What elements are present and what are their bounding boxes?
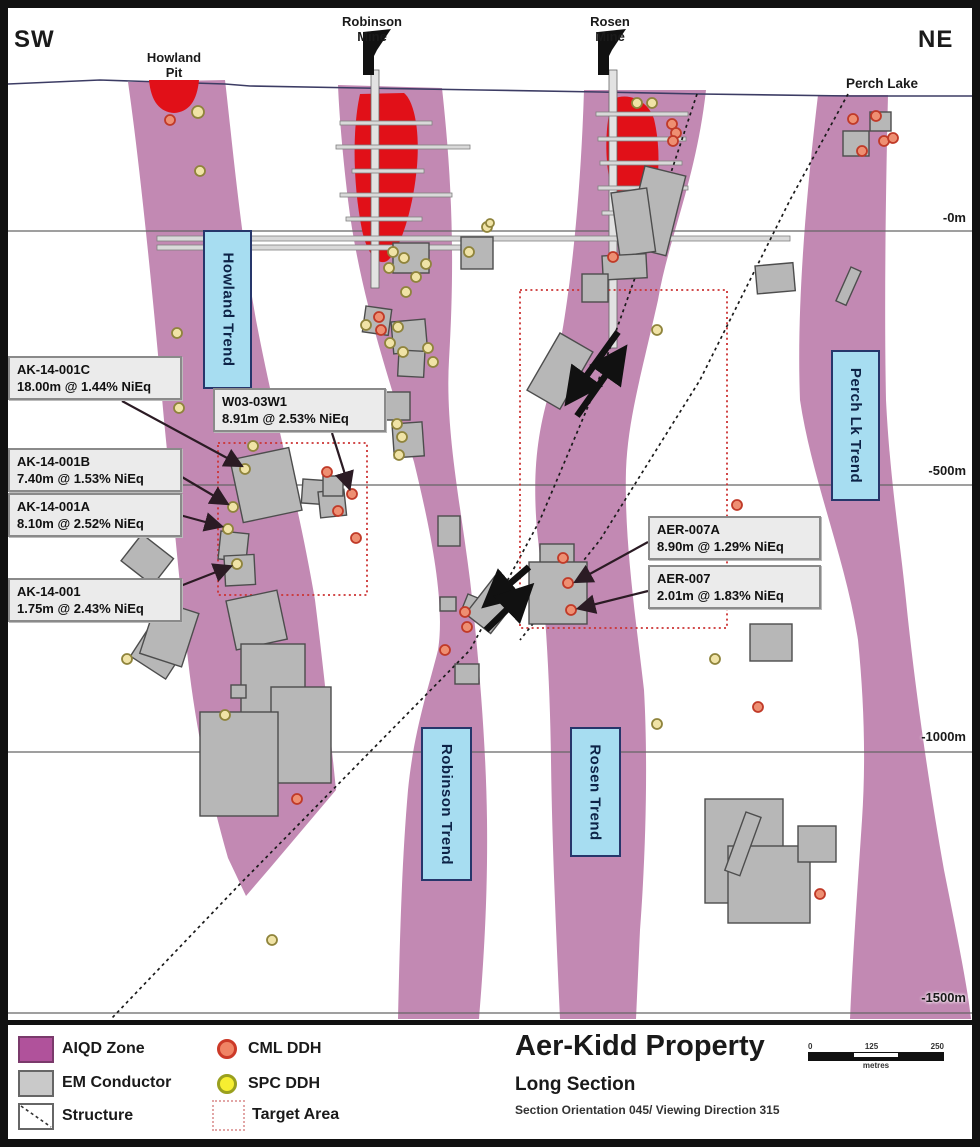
- howland-trend-label: Howland Trend: [203, 230, 252, 389]
- depth-marker-1000m: -1000m: [900, 729, 966, 744]
- spc-ddh-swatch: [217, 1074, 237, 1094]
- scale-bar-ticks: 0 125 250: [808, 1042, 944, 1051]
- em-conductor-swatch: [18, 1070, 54, 1097]
- structure-legend-label: Structure: [62, 1107, 133, 1125]
- section-drawing: [0, 0, 980, 1147]
- howland-pit-label: Howland Pit: [132, 50, 216, 80]
- spc-ddh-legend-label: SPC DDH: [248, 1075, 320, 1093]
- cml-ddh-swatch: [217, 1039, 237, 1059]
- depth-marker-0m: -0m: [900, 210, 966, 225]
- structure-swatch: [18, 1103, 54, 1130]
- scale-bar: 0 125 250 metres: [808, 1042, 944, 1070]
- corner-label-sw: SW: [14, 26, 55, 54]
- corner-label-ne: NE: [918, 26, 953, 54]
- target-area-swatch: [212, 1100, 245, 1131]
- structure-swatch-line: [20, 1105, 52, 1128]
- scale-bar-graphic: [808, 1052, 944, 1061]
- robinson-trend-label: Robinson Trend: [421, 727, 472, 881]
- annotation-ak-14-001a: AK-14-001A 8.10m @ 2.52% NiEq: [8, 493, 182, 537]
- annotation-w03-03w1: W03-03W1 8.91m @ 2.53% NiEq: [213, 388, 386, 432]
- cml-ddh-legend-label: CML DDH: [248, 1040, 321, 1058]
- figure-orientation-note: Section Orientation 045/ Viewing Directi…: [515, 1103, 780, 1117]
- perch-lake-label: Perch Lake: [846, 76, 918, 91]
- figure-subtitle: Long Section: [515, 1074, 635, 1096]
- annotation-ak-14-001: AK-14-001 1.75m @ 2.43% NiEq: [8, 578, 182, 622]
- annotation-aer-007a: AER-007A 8.90m @ 1.29% NiEq: [648, 516, 821, 560]
- depth-marker-500m: -500m: [900, 463, 966, 478]
- annotation-ak-14-001b: AK-14-001B 7.40m @ 1.53% NiEq: [8, 448, 182, 492]
- em-conductor-legend-label: EM Conductor: [62, 1074, 171, 1092]
- depth-marker-1500m: -1500m: [900, 990, 966, 1005]
- aiqd-zone-legend-label: AIQD Zone: [62, 1040, 145, 1058]
- rosen-trend-label: Rosen Trend: [570, 727, 621, 857]
- annotation-aer-007: AER-007 2.01m @ 1.83% NiEq: [648, 565, 821, 609]
- scale-bar-unit: metres: [808, 1061, 944, 1070]
- rosen-mine-label: Rosen Mine: [566, 14, 654, 44]
- perch-lk-trend-label: Perch Lk Trend: [831, 350, 880, 501]
- target-area-legend-label: Target Area: [252, 1106, 339, 1124]
- long-section-figure: SW NE Howland Pit Robinson Mine Rosen Mi…: [0, 0, 980, 1147]
- annotation-ak-14-001c: AK-14-001C 18.00m @ 1.44% NiEq: [8, 356, 182, 400]
- figure-title: Aer-Kidd Property: [515, 1030, 765, 1063]
- aiqd-zone-swatch: [18, 1036, 54, 1063]
- robinson-mine-label: Robinson Mine: [328, 14, 416, 44]
